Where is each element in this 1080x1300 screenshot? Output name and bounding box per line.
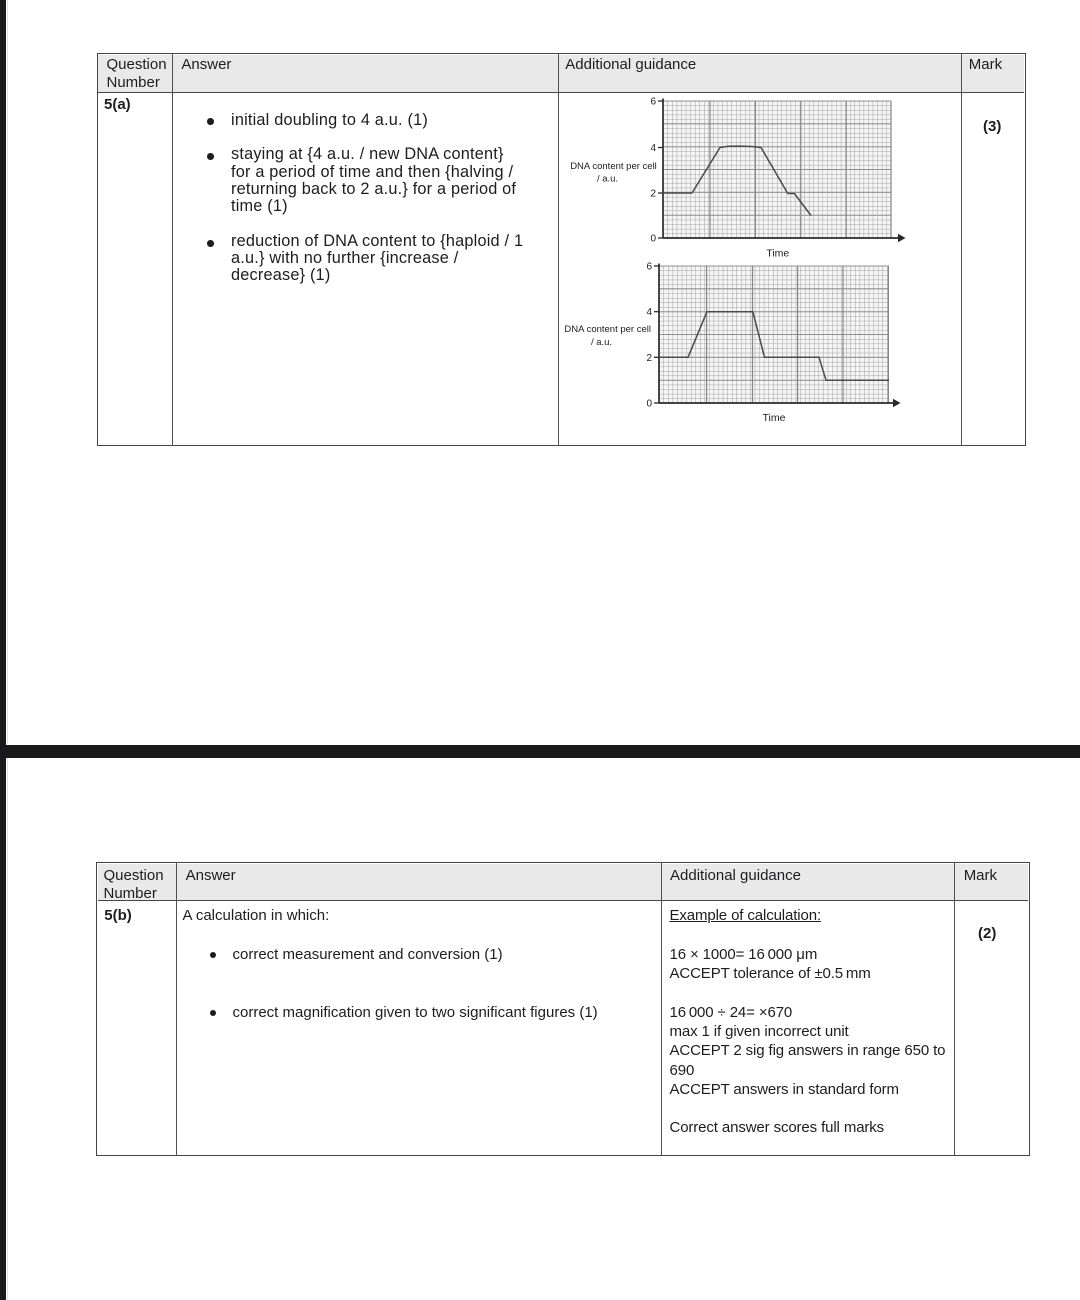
svg-text:6: 6 [650,97,656,108]
svg-text:/ a.u.: / a.u. [591,337,612,348]
svg-text:0: 0 [646,399,652,410]
svg-text:Time: Time [763,412,786,424]
svg-text:0: 0 [650,234,656,245]
svg-text:Time: Time [766,247,789,259]
svg-text:/ a.u.: / a.u. [597,174,618,185]
svg-text:4: 4 [646,307,652,318]
svg-text:6: 6 [646,262,652,273]
svg-text:DNA content per cell: DNA content per cell [564,324,651,335]
svg-text:4: 4 [650,143,656,154]
svg-text:2: 2 [650,189,656,200]
svg-text:2: 2 [646,353,652,364]
svg-text:DNA content per cell: DNA content per cell [570,161,657,172]
